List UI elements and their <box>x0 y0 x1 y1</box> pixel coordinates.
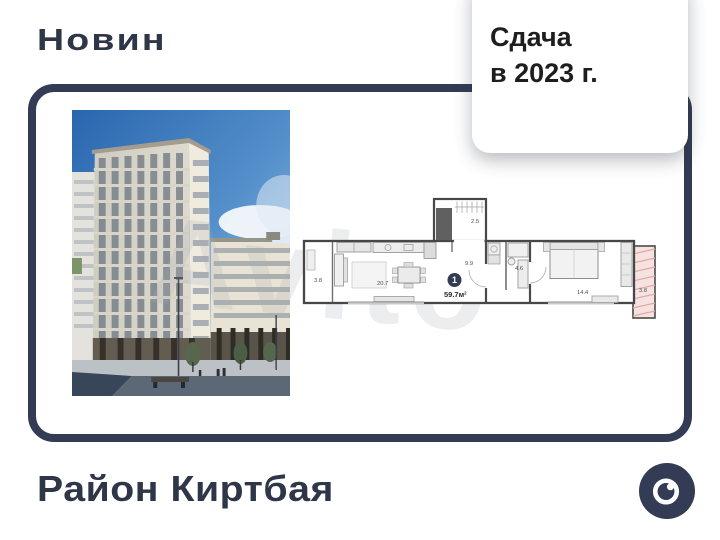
svg-text:14.4: 14.4 <box>577 290 589 296</box>
svg-text:3.8: 3.8 <box>639 288 647 294</box>
svg-text:59.7м2: 59.7м2 <box>444 290 467 299</box>
svg-text:20.7: 20.7 <box>377 281 388 287</box>
svg-text:4.6: 4.6 <box>515 266 523 272</box>
svg-text:9.9: 9.9 <box>465 261 473 267</box>
svg-text:2.5: 2.5 <box>471 219 479 225</box>
svg-text:1: 1 <box>452 275 457 285</box>
svg-text:3.8: 3.8 <box>314 278 322 284</box>
